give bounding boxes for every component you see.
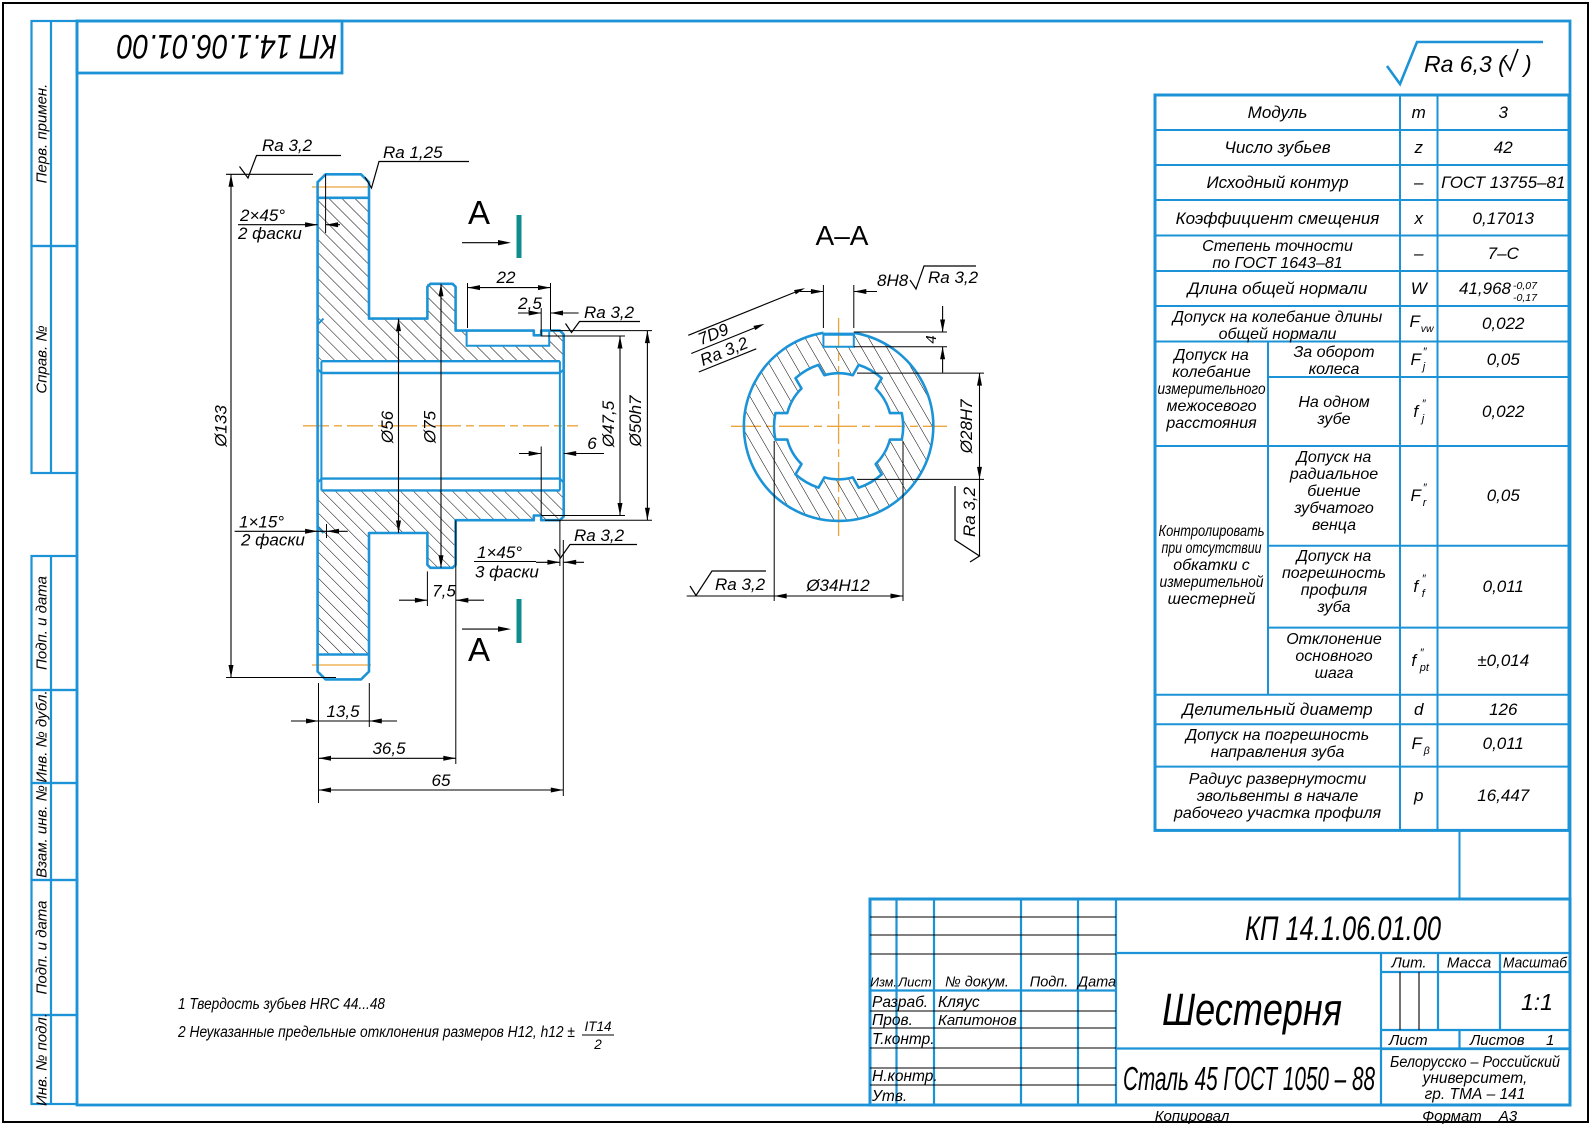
svg-text:Масштаб: Масштаб [1503, 955, 1568, 972]
svg-text:зубчатого: зубчатого [1293, 500, 1374, 517]
svg-text:13,5: 13,5 [326, 702, 360, 721]
svg-text:Капитонов: Капитонов [938, 1012, 1017, 1029]
svg-text:F: F [1411, 350, 1423, 369]
svg-text:41,968: 41,968 [1459, 279, 1512, 298]
svg-text:p: p [1413, 786, 1423, 805]
svg-text:2 фаски: 2 фаски [240, 531, 305, 550]
svg-text:0,17013: 0,17013 [1473, 209, 1535, 228]
svg-text:-0,17: -0,17 [1513, 292, 1538, 304]
svg-text:Ø133: Ø133 [212, 405, 231, 448]
svg-text:Инв. № дубл.: Инв. № дубл. [34, 690, 51, 782]
svg-text:Ra 6,3 (: Ra 6,3 ( [1424, 51, 1508, 77]
svg-text:65: 65 [432, 771, 451, 790]
svg-text:расстояния: расстояния [1165, 415, 1257, 432]
svg-text:колебание: колебание [1172, 364, 1251, 381]
svg-text:7,5: 7,5 [432, 582, 456, 601]
svg-text:Ra 1,25: Ra 1,25 [383, 143, 443, 162]
svg-text:зуба: зуба [1316, 599, 1350, 616]
svg-text:Допуск на погрешность: Допуск на погрешность [1184, 727, 1369, 744]
svg-text:Инв. № подл.: Инв. № подл. [34, 1013, 51, 1106]
svg-text:F: F [1410, 312, 1422, 331]
svg-text:16,447: 16,447 [1477, 786, 1530, 805]
svg-text:Дата: Дата [1076, 975, 1116, 991]
svg-text:А: А [468, 631, 490, 668]
svg-text:Изм.: Изм. [870, 976, 897, 990]
svg-text:±0,014: ±0,014 [1477, 651, 1529, 670]
svg-text:Н.контр.: Н.контр. [872, 1068, 938, 1085]
svg-text:Ø34H12: Ø34H12 [805, 576, 870, 595]
svg-text:1 Твердость зубьев HRC 44...4: 1 Твердость зубьев HRC 44...48 [178, 996, 385, 1013]
svg-text:3: 3 [1499, 103, 1509, 122]
svg-text:126: 126 [1489, 700, 1518, 719]
svg-text:рабочего участка профиля: рабочего участка профиля [1173, 805, 1382, 822]
svg-text:Т.контр.: Т.контр. [872, 1031, 935, 1048]
svg-text:Радиус развернутости: Радиус развернутости [1189, 771, 1367, 788]
svg-text:4: 4 [923, 335, 940, 343]
svg-text:42: 42 [1494, 138, 1513, 157]
svg-text:Пров.: Пров. [872, 1012, 913, 1029]
svg-text:радиальное: радиальное [1289, 466, 1378, 483]
svg-text:Листов: Листов [1469, 1032, 1525, 1049]
svg-text:Допуск на: Допуск на [1295, 449, 1372, 466]
svg-text:Допуск на: Допуск на [1295, 548, 1372, 565]
svg-text:Подп. и дата: Подп. и дата [34, 576, 51, 670]
svg-text:2,5: 2,5 [517, 294, 542, 313]
svg-text:по ГОСТ 1643–81: по ГОСТ 1643–81 [1212, 255, 1342, 272]
svg-text:Контролировать: Контролировать [1159, 523, 1265, 540]
svg-text:2×45°: 2×45° [239, 206, 285, 225]
svg-text:Допуск на колебание длины: Допуск на колебание длины [1171, 309, 1383, 326]
svg-text:Степень точности: Степень точности [1202, 238, 1353, 255]
svg-text:Подп.: Подп. [1030, 975, 1069, 991]
svg-text:0,05: 0,05 [1487, 350, 1521, 369]
svg-text:Перв. примен.: Перв. примен. [34, 84, 51, 184]
svg-text:межосевого: межосевого [1167, 398, 1257, 415]
svg-text:Число зубьев: Число зубьев [1224, 138, 1330, 157]
svg-text:Коэффициент смещения: Коэффициент смещения [1176, 209, 1380, 228]
svg-text:колеса: колеса [1309, 361, 1360, 378]
svg-text:Справ. №: Справ. № [34, 325, 51, 393]
svg-text:За оборот: За оборот [1293, 344, 1374, 361]
svg-text:обкатки с: обкатки с [1173, 557, 1250, 574]
svg-text:36,5: 36,5 [372, 739, 406, 758]
svg-text:шестерней: шестерней [1168, 591, 1256, 608]
svg-text:0,011: 0,011 [1483, 577, 1524, 596]
svg-text:А: А [468, 194, 490, 231]
svg-text:профиля: профиля [1301, 582, 1368, 599]
svg-text:Кляус: Кляус [938, 994, 980, 1011]
svg-text:0,011: 0,011 [1483, 734, 1524, 753]
svg-text:m: m [1412, 103, 1426, 122]
svg-text:Ra 3,2: Ra 3,2 [574, 526, 625, 545]
svg-text:Допуск на: Допуск на [1172, 347, 1249, 364]
svg-text:погрешность: погрешность [1282, 565, 1386, 582]
svg-text:Лит.: Лит. [1390, 955, 1426, 972]
svg-text:биение: биение [1307, 483, 1361, 500]
svg-text:2 фаски: 2 фаски [237, 224, 302, 243]
svg-text:А–А: А–А [816, 220, 869, 251]
svg-text:Лист: Лист [1388, 1032, 1428, 1049]
svg-text:6: 6 [587, 434, 597, 453]
svg-text:венца: венца [1312, 517, 1356, 534]
svg-text:F: F [1412, 734, 1424, 753]
svg-text:КП 14.1.06.01.00: КП 14.1.06.01.00 [1245, 910, 1441, 948]
svg-text:22: 22 [496, 268, 516, 287]
svg-text:0,022: 0,022 [1482, 314, 1525, 333]
svg-text:основного: основного [1295, 648, 1372, 665]
svg-text:измерительного: измерительного [1158, 381, 1266, 398]
svg-text:Ra 3,2: Ra 3,2 [960, 486, 979, 537]
svg-text:Делительный диаметр: Делительный диаметр [1180, 700, 1372, 719]
svg-text:z: z [1414, 138, 1424, 157]
svg-text:Длина общей нормали: Длина общей нормали [1186, 279, 1368, 298]
svg-text:–: – [1413, 173, 1424, 192]
svg-text:0,022: 0,022 [1482, 402, 1525, 421]
svg-text:Ra 3,2: Ra 3,2 [928, 268, 979, 287]
svg-text:β: β [1423, 745, 1430, 757]
svg-text:университет,: университет, [1422, 1070, 1528, 1087]
svg-text:шага: шага [1315, 665, 1354, 682]
svg-text:гр. ТМА – 141: гр. ТМА – 141 [1425, 1086, 1526, 1103]
svg-text:Ø75: Ø75 [421, 410, 440, 444]
svg-text:Ø56: Ø56 [378, 410, 397, 444]
svg-text:Подп. и дата: Подп. и дата [34, 901, 51, 995]
svg-text:Исходный контур: Исходный контур [1206, 173, 1348, 192]
svg-text:3 фаски: 3 фаски [475, 563, 539, 582]
svg-text:КП 14.1.06.01.00: КП 14.1.06.01.00 [117, 27, 337, 65]
svg-text:Отклонение: Отклонение [1286, 631, 1382, 648]
svg-text:Взам. инв. №: Взам. инв. № [34, 785, 51, 878]
svg-text:Копировал: Копировал [1155, 1108, 1230, 1125]
svg-text:Сталь 45 ГОСТ 1050 – 88: Сталь 45 ГОСТ 1050 – 88 [1123, 1060, 1375, 1097]
svg-text:d: d [1414, 700, 1424, 719]
svg-text:1×45°: 1×45° [477, 543, 522, 562]
svg-text:зубе: зубе [1316, 411, 1350, 428]
svg-text:Масса: Масса [1447, 955, 1491, 972]
svg-text:измерительной: измерительной [1160, 574, 1264, 591]
svg-text:общей нормали: общей нормали [1219, 326, 1337, 343]
svg-text:–: – [1413, 244, 1424, 263]
svg-text:F: F [1411, 486, 1423, 505]
svg-text:А3: А3 [1498, 1108, 1518, 1125]
svg-text:7–С: 7–С [1488, 244, 1520, 263]
svg-text:Ø28H7: Ø28H7 [957, 399, 976, 454]
svg-text:эвольвенты в начале: эвольвенты в начале [1197, 788, 1359, 805]
svg-text:1: 1 [1546, 1032, 1554, 1049]
svg-text:IT14: IT14 [584, 1019, 611, 1034]
svg-text:vw: vw [1421, 323, 1435, 335]
svg-text:На одном: На одном [1298, 394, 1369, 411]
svg-text:W: W [1411, 279, 1429, 298]
svg-text:2 Неуказанные предельные откл: 2 Неуказанные предельные отклонения разм… [177, 1024, 575, 1041]
svg-text:Шестерня: Шестерня [1162, 984, 1342, 1035]
svg-text:pt: pt [1419, 662, 1430, 674]
svg-text:Ø47,5: Ø47,5 [599, 400, 618, 448]
svg-text:Белорусско – Российский: Белорусско – Российский [1390, 1054, 1560, 1071]
svg-text:Ra 3,2: Ra 3,2 [584, 303, 635, 322]
svg-text:Формат: Формат [1422, 1108, 1482, 1125]
svg-text:Ø50h7: Ø50h7 [626, 395, 645, 448]
svg-text:при отсутствии: при отсутствии [1162, 540, 1262, 557]
svg-text:№ докум.: № докум. [945, 975, 1009, 991]
svg-text:-0,07: -0,07 [1513, 280, 1538, 292]
svg-text:Лист: Лист [897, 975, 932, 990]
svg-text:0,05: 0,05 [1487, 486, 1521, 505]
svg-text:Разраб.: Разраб. [872, 994, 928, 1011]
svg-text:ГОСТ 13755–81: ГОСТ 13755–81 [1441, 173, 1565, 192]
svg-text:1×15°: 1×15° [239, 513, 284, 532]
svg-text:Ra 3,2: Ra 3,2 [715, 575, 766, 594]
svg-text:направления зуба: направления зуба [1211, 744, 1345, 761]
svg-text:Утв.: Утв. [871, 1088, 907, 1105]
svg-text:Ra 3,2: Ra 3,2 [262, 136, 313, 155]
svg-text:2: 2 [593, 1037, 602, 1052]
svg-text:1:1: 1:1 [1521, 989, 1553, 1015]
svg-text:8H8: 8H8 [877, 271, 909, 290]
svg-text:x: x [1414, 209, 1424, 228]
svg-text:Модуль: Модуль [1248, 103, 1308, 122]
